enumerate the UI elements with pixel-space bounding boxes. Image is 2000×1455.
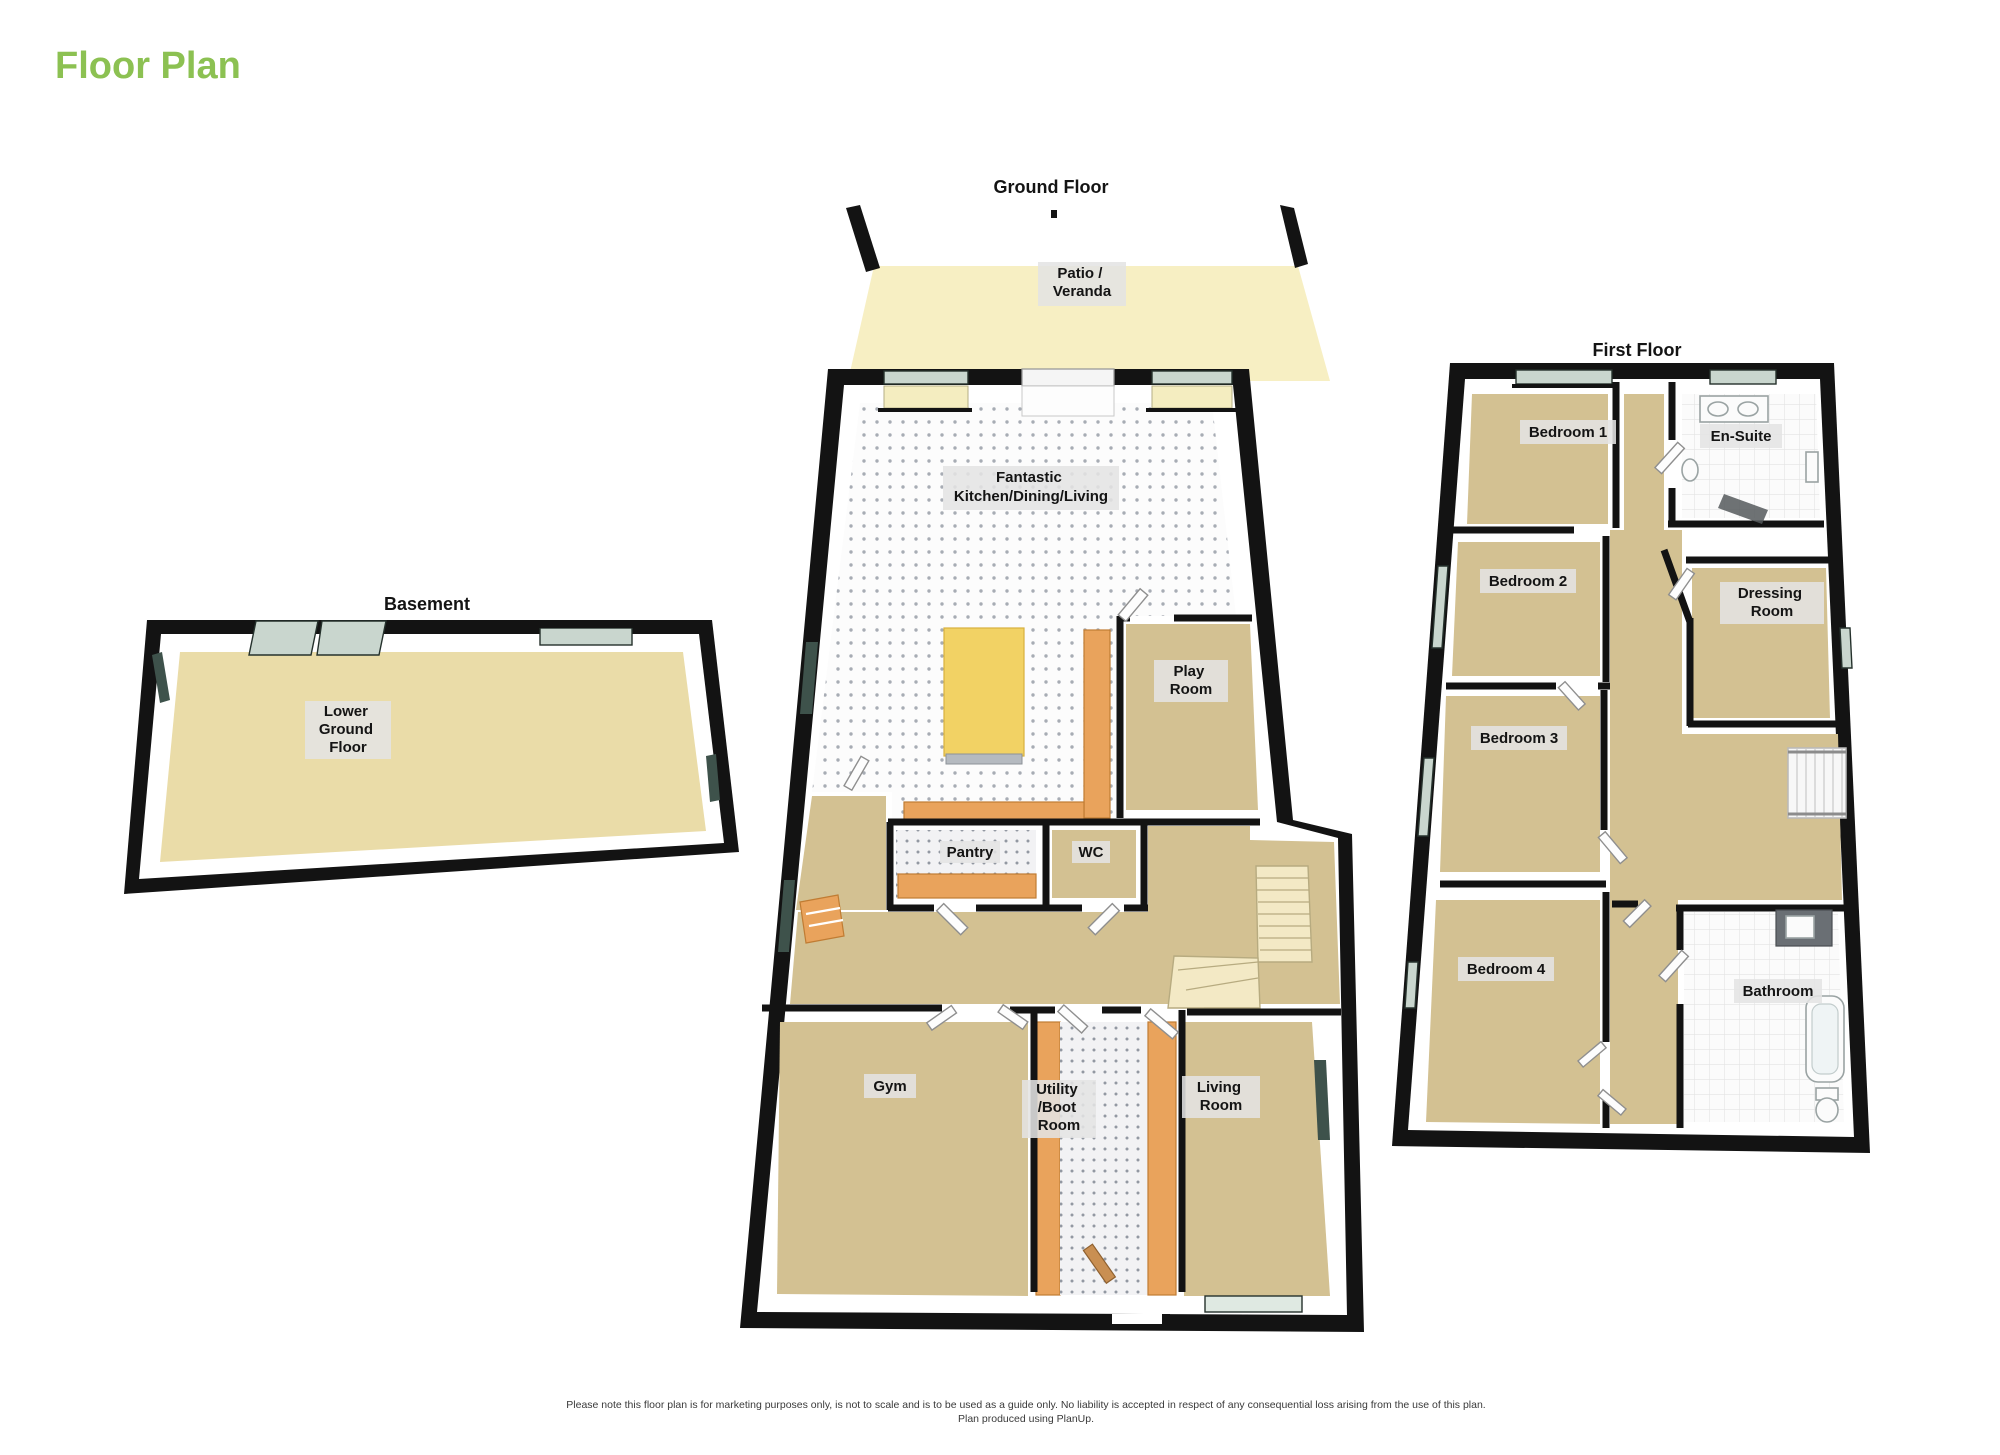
svg-text:Utility /Boot: Utility /Boot Room <box>1036 1081 1082 1134</box>
ensuite-window-icon <box>1710 370 1776 384</box>
svg-text:WC: WC <box>1079 844 1104 861</box>
first-floor-plan: First Floor <box>1392 340 1870 1153</box>
pantry-counter <box>898 874 1036 898</box>
window-icon <box>1840 628 1852 668</box>
label-living-room: Living Room <box>1182 1076 1260 1118</box>
kitchen-window-bay <box>1152 386 1232 408</box>
wall <box>762 1008 1341 1012</box>
room-label-line: Play <box>1173 663 1205 680</box>
basement-stairs-icon <box>800 895 844 943</box>
room-label-line: /Boot <box>1038 1099 1076 1116</box>
first-stairs-icon <box>1788 748 1846 818</box>
patio-door-icon <box>1022 369 1114 386</box>
wc-floor <box>1052 830 1136 898</box>
room-label-line: Utility <box>1036 1081 1078 1098</box>
label-bedroom2: Bedroom 2 <box>1480 569 1576 593</box>
svg-text:Bedroom 1: Bedroom 1 <box>1529 424 1607 441</box>
svg-text:Pantry: Pantry <box>947 844 994 861</box>
bedroom2-floor <box>1452 542 1600 676</box>
label-pantry: Pantry <box>940 841 1000 863</box>
room-label-line: Floor <box>329 739 367 756</box>
room-label-line: Dressing <box>1738 585 1802 602</box>
label-bedroom4: Bedroom 4 <box>1458 957 1554 981</box>
utility-counter <box>1148 1022 1176 1295</box>
svg-text:Bedroom 3: Bedroom 3 <box>1480 730 1558 747</box>
room-label-line: Kitchen/Dining/Living <box>954 488 1108 505</box>
room-label-line: Living <box>1197 1079 1241 1096</box>
page-title: Floor Plan <box>55 45 241 87</box>
label-wc: WC <box>1072 841 1110 863</box>
play-room-floor <box>1126 624 1258 810</box>
label-play-room: Play Room <box>1154 660 1228 702</box>
room-label-line: Room <box>1751 603 1794 620</box>
kitchen-window-icon <box>884 371 968 384</box>
label-patio: Patio / Veranda <box>1038 262 1126 306</box>
label-ensuite: En-Suite <box>1700 424 1782 448</box>
ground-floor-title-marker <box>1051 210 1057 218</box>
kitchen-counter <box>1084 630 1110 818</box>
svg-text:Patio / Veranda: Patio / Veranda <box>1053 265 1112 300</box>
room-label-line: Room <box>1200 1097 1243 1114</box>
patio-door-reveal <box>1022 386 1114 416</box>
kitchen-island <box>944 628 1024 756</box>
basement-floor <box>160 652 706 862</box>
svg-text:Bedroom 2: Bedroom 2 <box>1489 573 1567 590</box>
gym-floor <box>777 1022 1028 1296</box>
svg-text:En-Suite: En-Suite <box>1711 428 1772 445</box>
label-lower-ground-floor: Lower Ground Floor <box>305 701 391 759</box>
svg-text:Bedroom 4: Bedroom 4 <box>1467 961 1546 978</box>
utility-counter <box>1036 1022 1060 1295</box>
room-label-line: Patio / <box>1057 265 1103 282</box>
room-label-line: Room <box>1170 681 1213 698</box>
patio-right-wall <box>1280 205 1308 268</box>
floor-plan-page: Floor Plan Basement Lower Ground Floor G… <box>0 0 2000 1455</box>
disclaimer-line2: Plan produced using PlanUp. <box>958 1413 1094 1425</box>
utility-floor <box>1060 1022 1148 1295</box>
disclaimer-line1: Please note this floor plan is for marke… <box>566 1399 1485 1411</box>
basement-plan: Basement Lower Ground Floor <box>124 594 739 894</box>
label-bathroom: Bathroom <box>1734 979 1822 1003</box>
label-dressing-room: Dressing Room <box>1720 582 1824 624</box>
svg-text:Gym: Gym <box>873 1078 906 1095</box>
ground-floor-plan: Ground Floor <box>740 177 1364 1332</box>
room-label-line: Lower <box>324 703 368 720</box>
basement-title: Basement <box>384 594 470 614</box>
kitchen-island-base <box>946 754 1022 764</box>
basement-window-icon <box>317 621 386 655</box>
living-window-icon <box>1205 1296 1302 1312</box>
basement-window-icon <box>540 628 632 645</box>
radiator-icon <box>1806 452 1818 482</box>
bedroom1-window-icon <box>1516 370 1612 384</box>
footer-disclaimer: Please note this floor plan is for marke… <box>566 1399 1485 1425</box>
window-icon <box>1405 962 1418 1008</box>
basement-window-icon <box>249 621 318 655</box>
kitchen-window-bay <box>884 386 968 408</box>
first-floor-title: First Floor <box>1593 340 1682 360</box>
room-label-line: Ground <box>319 721 373 738</box>
floor-plan-canvas: Floor Plan Basement Lower Ground Floor G… <box>0 0 2000 1455</box>
room-label-line: Fantastic <box>996 469 1062 486</box>
bedroom3-floor <box>1440 696 1600 872</box>
label-utility: Utility /Boot Room <box>1022 1080 1096 1138</box>
patio-left-wall <box>846 205 880 272</box>
svg-text:Bathroom: Bathroom <box>1743 983 1814 1000</box>
living-room-floor <box>1184 1022 1330 1296</box>
room-label-line: Veranda <box>1053 283 1112 300</box>
svg-text:Living Room: Living Room <box>1197 1079 1245 1114</box>
toilet-icon <box>1682 459 1698 481</box>
bedroom4-floor <box>1426 900 1600 1124</box>
kitchen-window-icon <box>1152 371 1232 384</box>
label-bedroom3: Bedroom 3 <box>1471 726 1567 750</box>
label-gym: Gym <box>864 1074 916 1098</box>
bedroom1-floor <box>1467 394 1608 524</box>
label-bedroom1: Bedroom 1 <box>1520 420 1616 444</box>
front-step <box>1104 1314 1170 1330</box>
svg-text:Play Room: Play Room <box>1170 663 1213 698</box>
ground-floor-title: Ground Floor <box>994 177 1109 197</box>
label-kitchen: Fantastic Kitchen/Dining/Living <box>943 466 1119 510</box>
room-label-line: Room <box>1038 1117 1081 1134</box>
